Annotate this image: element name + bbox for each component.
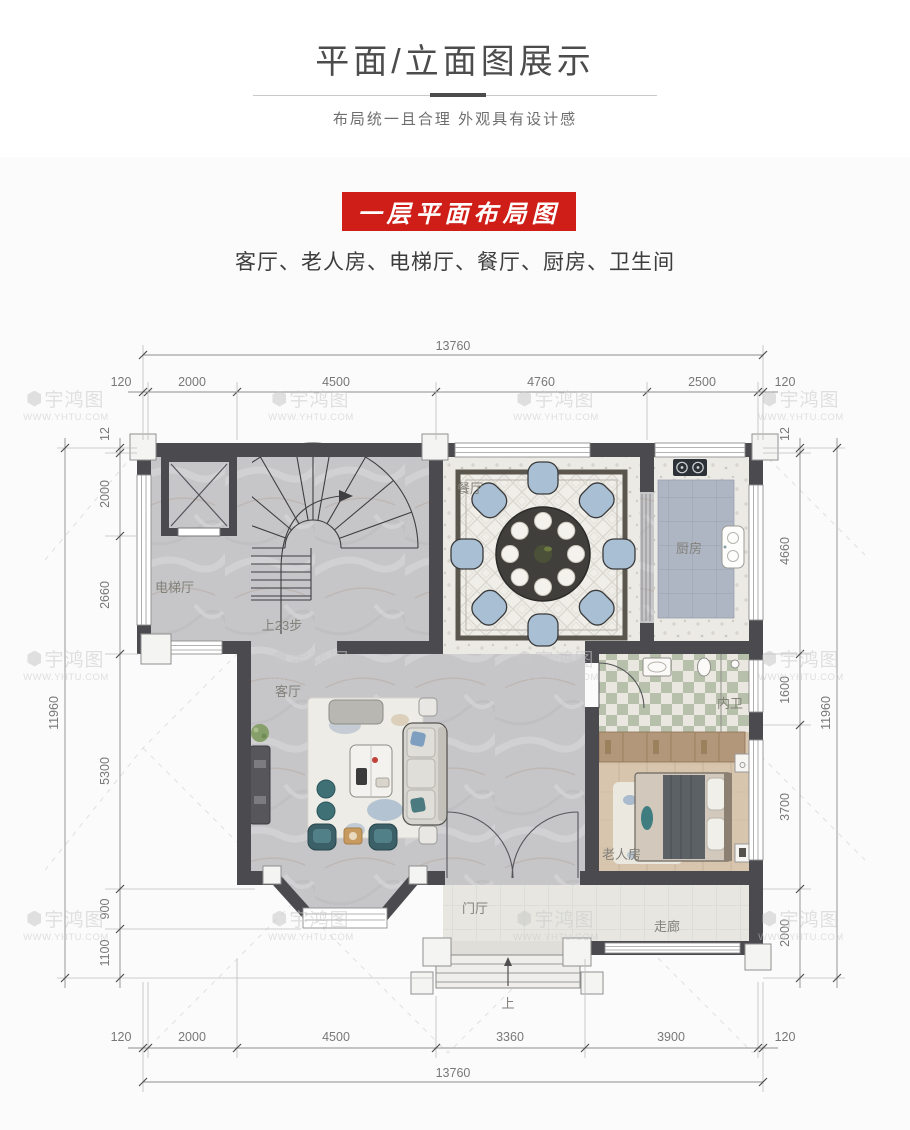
bedroom-furniture — [599, 732, 750, 864]
stove-icon — [673, 459, 707, 476]
svg-text:1100: 1100 — [98, 940, 112, 967]
room-summary: 客厅、老人房、电梯厅、餐厅、厨房、卫生间 — [0, 246, 910, 276]
wardrobe — [599, 732, 745, 762]
dim-bottom-total: 13760 — [436, 1066, 471, 1080]
corner-block — [141, 634, 171, 664]
label-living: 客厅 — [275, 684, 301, 699]
page: 平面/立面图展示 布局统一且合理 外观具有设计感 一层平面布局图 客厅、老人房、… — [0, 0, 910, 1130]
bed-blanket — [663, 775, 705, 859]
svg-text:2000: 2000 — [98, 480, 112, 508]
svg-text:120: 120 — [111, 375, 132, 389]
bed-pillow — [707, 818, 725, 850]
svg-text:4500: 4500 — [322, 1030, 350, 1044]
label-kitchen: 厨房 — [676, 541, 702, 556]
floor-plan: 上23步 — [45, 330, 865, 1100]
page-title: 平面/立面图展示 — [0, 34, 910, 83]
svg-text:12: 12 — [98, 427, 112, 441]
plant-icon — [251, 724, 269, 742]
svg-text:4660: 4660 — [778, 537, 792, 565]
floor-foyer-corridor — [443, 885, 749, 941]
svg-text:12: 12 — [778, 427, 792, 441]
bed-pillow — [707, 778, 725, 810]
corner-block — [263, 866, 281, 884]
garment-on-bed — [641, 806, 653, 830]
kitchen-fixtures — [658, 459, 744, 618]
svg-text:3360: 3360 — [496, 1030, 524, 1044]
elevator-shaft — [165, 446, 233, 536]
pouf — [317, 802, 335, 820]
dim-top-total: 13760 — [436, 339, 471, 353]
tv-bench — [329, 700, 383, 724]
svg-text:3900: 3900 — [657, 1030, 685, 1044]
svg-text:5300: 5300 — [98, 757, 112, 785]
label-corridor: 走廊 — [654, 919, 680, 934]
dim-right-total: 11960 — [819, 696, 833, 730]
label-foyer: 门厅 — [462, 901, 488, 916]
svg-text:2000: 2000 — [178, 1030, 206, 1044]
label-elevator-hall: 电梯厅 — [155, 580, 194, 595]
svg-text:2000: 2000 — [778, 919, 792, 947]
svg-text:1600: 1600 — [778, 676, 792, 704]
label-elder-room: 老人房 — [602, 847, 641, 862]
svg-text:900: 900 — [98, 899, 112, 920]
stair-note: 上23步 — [262, 618, 302, 633]
headboard — [724, 773, 732, 861]
svg-text:4760: 4760 — [527, 375, 555, 389]
svg-text:120: 120 — [775, 1030, 796, 1044]
dim-right: 12 4660 1600 3700 2000 11960 — [763, 427, 845, 988]
svg-text:2500: 2500 — [688, 375, 716, 389]
corner-block — [409, 866, 427, 884]
shower-drain-icon — [731, 660, 739, 668]
svg-text:4500: 4500 — [322, 375, 350, 389]
tv-console — [250, 746, 270, 824]
svg-text:2000: 2000 — [178, 375, 206, 389]
label-bath: 内卫 — [717, 696, 743, 711]
svg-text:3700: 3700 — [778, 793, 792, 821]
page-subtitle: 布局统一且合理 外观具有设计感 — [0, 108, 910, 129]
dim-left-total: 11960 — [47, 696, 61, 730]
entry-step-note: 上 — [501, 996, 514, 1011]
pouf — [317, 780, 335, 798]
title-divider-accent — [430, 93, 486, 97]
side-table — [419, 826, 437, 844]
svg-text:2660: 2660 — [98, 581, 112, 609]
corner-block — [745, 944, 771, 970]
bathroom-sink-icon — [643, 658, 671, 676]
toilet-icon — [698, 658, 711, 676]
corner-block — [752, 434, 778, 460]
floor-bathroom — [599, 654, 749, 732]
side-table — [419, 698, 437, 716]
svg-text:120: 120 — [111, 1030, 132, 1044]
section-banner: 一层平面布局图 — [342, 192, 576, 231]
corner-block — [422, 434, 448, 460]
dim-top: 13760 120 2000 4500 4760 2500 120 — [111, 339, 796, 440]
porch-landing — [436, 941, 580, 955]
svg-text:120: 120 — [775, 375, 796, 389]
label-dining: 餐厅 — [457, 481, 483, 496]
